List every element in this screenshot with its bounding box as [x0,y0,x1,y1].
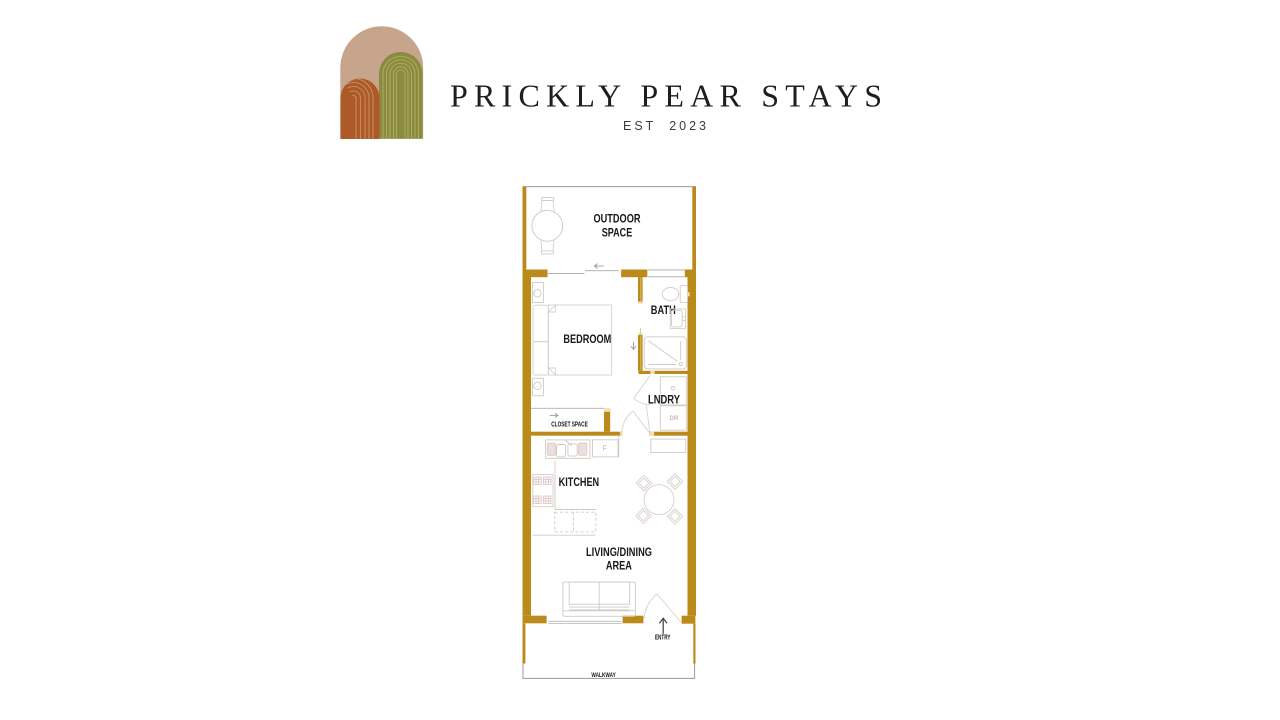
svg-text:LNDRY: LNDRY [648,394,680,407]
svg-text:F: F [603,446,607,453]
svg-text:DR: DR [670,415,679,422]
svg-text:WALKWAY: WALKWAY [591,673,616,679]
svg-text:ENTRY: ENTRY [655,634,671,641]
svg-text:AREA: AREA [606,559,632,572]
svg-text:LIVING/DINING: LIVING/DINING [586,546,652,559]
svg-text:OUTDOOR: OUTDOOR [594,212,641,225]
svg-text:EST 2023: EST 2023 [623,119,706,133]
svg-text:SPACE: SPACE [602,226,633,239]
svg-text:CLOSET SPACE: CLOSET SPACE [551,421,588,428]
svg-text:KITCHEN: KITCHEN [559,476,600,489]
svg-text:BEDROOM: BEDROOM [563,333,611,346]
